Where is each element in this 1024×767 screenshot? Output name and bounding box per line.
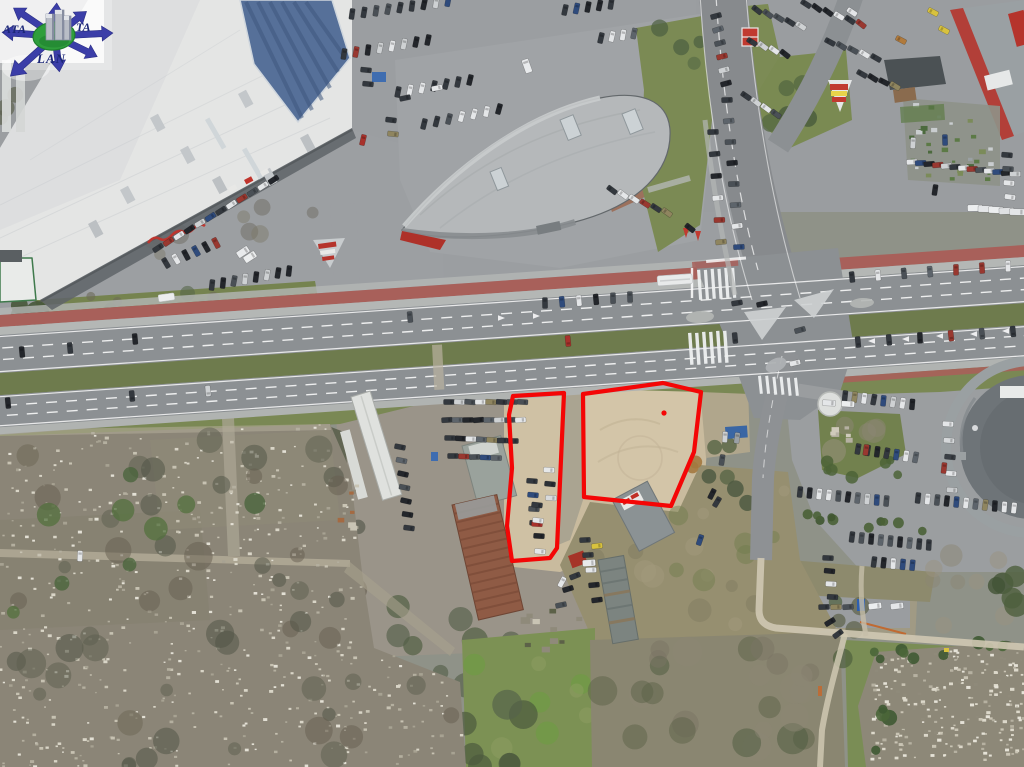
aerial-drone-photo: ATA TA LAN xyxy=(0,0,1024,767)
aerial-scene xyxy=(0,0,1024,767)
